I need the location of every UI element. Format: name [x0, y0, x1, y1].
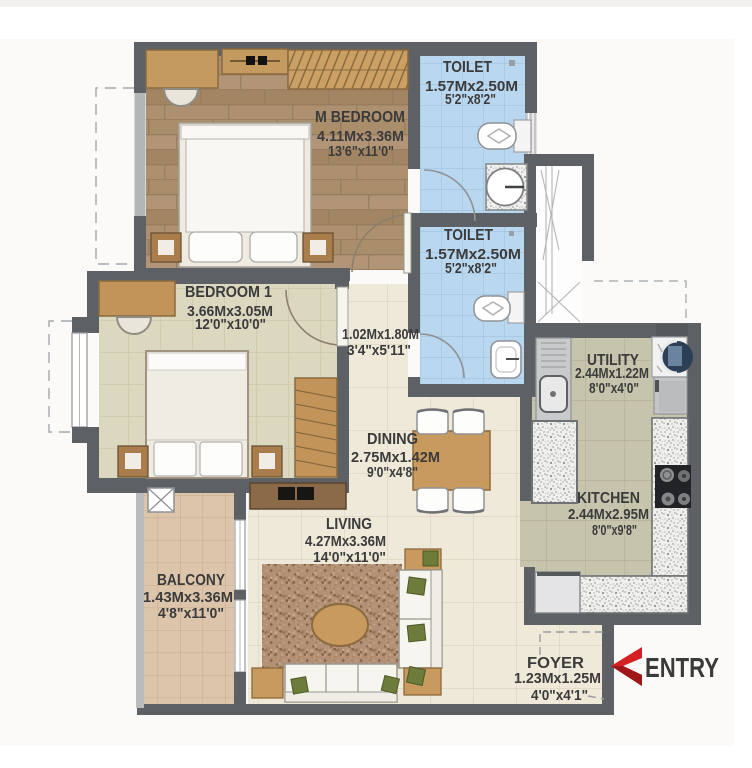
svg-text:1.23Mx1.25M: 1.23Mx1.25M	[514, 671, 601, 687]
svg-text:9'0"x4'8": 9'0"x4'8"	[367, 465, 418, 481]
svg-text:13'6"x11'0": 13'6"x11'0"	[328, 144, 394, 160]
svg-text:5'2"x8'2": 5'2"x8'2"	[445, 92, 496, 108]
svg-text:12'0"x10'0": 12'0"x10'0"	[195, 317, 266, 333]
svg-text:5'2"x8'2": 5'2"x8'2"	[445, 261, 497, 277]
svg-text:DINING: DINING	[367, 431, 418, 448]
svg-text:4'0"x4'1": 4'0"x4'1"	[531, 688, 588, 704]
svg-text:BALCONY: BALCONY	[157, 572, 226, 589]
svg-text:4.11Mx3.36M: 4.11Mx3.36M	[317, 129, 404, 145]
svg-text:4.27Mx3.36M: 4.27Mx3.36M	[305, 534, 386, 550]
svg-text:KITCHEN: KITCHEN	[577, 490, 640, 507]
svg-text:14'0"x11'0": 14'0"x11'0"	[313, 550, 386, 566]
svg-text:8'0"x9'8": 8'0"x9'8"	[592, 523, 637, 539]
svg-text:1.43Mx3.36M: 1.43Mx3.36M	[143, 590, 233, 606]
svg-text:1.02Mx1.80M: 1.02Mx1.80M	[342, 327, 419, 343]
svg-text:2.44Mx1.22M: 2.44Mx1.22M	[575, 366, 649, 382]
svg-text:4'8"x11'0": 4'8"x11'0"	[158, 606, 224, 622]
svg-text:TOILET: TOILET	[443, 59, 492, 76]
svg-text:ENTRY: ENTRY	[645, 652, 719, 683]
svg-text:2.44Mx2.95M: 2.44Mx2.95M	[568, 507, 649, 523]
svg-text:BEDROOM 1: BEDROOM 1	[185, 284, 272, 301]
svg-text:M BEDROOM: M BEDROOM	[315, 109, 405, 126]
svg-text:3'4"x5'11": 3'4"x5'11"	[347, 343, 411, 359]
svg-text:8'0"x4'0": 8'0"x4'0"	[589, 381, 639, 397]
svg-text:TOILET: TOILET	[444, 227, 493, 244]
svg-text:2.75Mx1.42M: 2.75Mx1.42M	[351, 450, 440, 466]
svg-text:FOYER: FOYER	[527, 655, 584, 672]
svg-text:LIVING: LIVING	[326, 516, 372, 533]
